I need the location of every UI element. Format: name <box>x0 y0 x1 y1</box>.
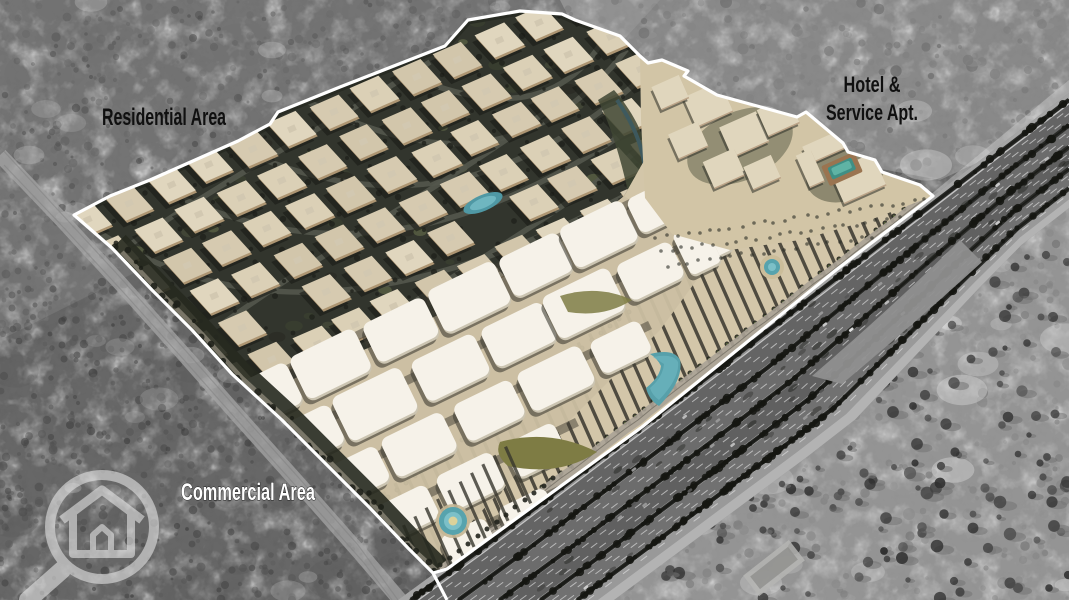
svg-text:Commercial Area: Commercial Area <box>181 479 315 506</box>
svg-text:Hotel &: Hotel & <box>844 72 901 97</box>
svg-text:Residential Area: Residential Area <box>102 104 226 131</box>
svg-text:Service Apt.: Service Apt. <box>826 100 918 125</box>
